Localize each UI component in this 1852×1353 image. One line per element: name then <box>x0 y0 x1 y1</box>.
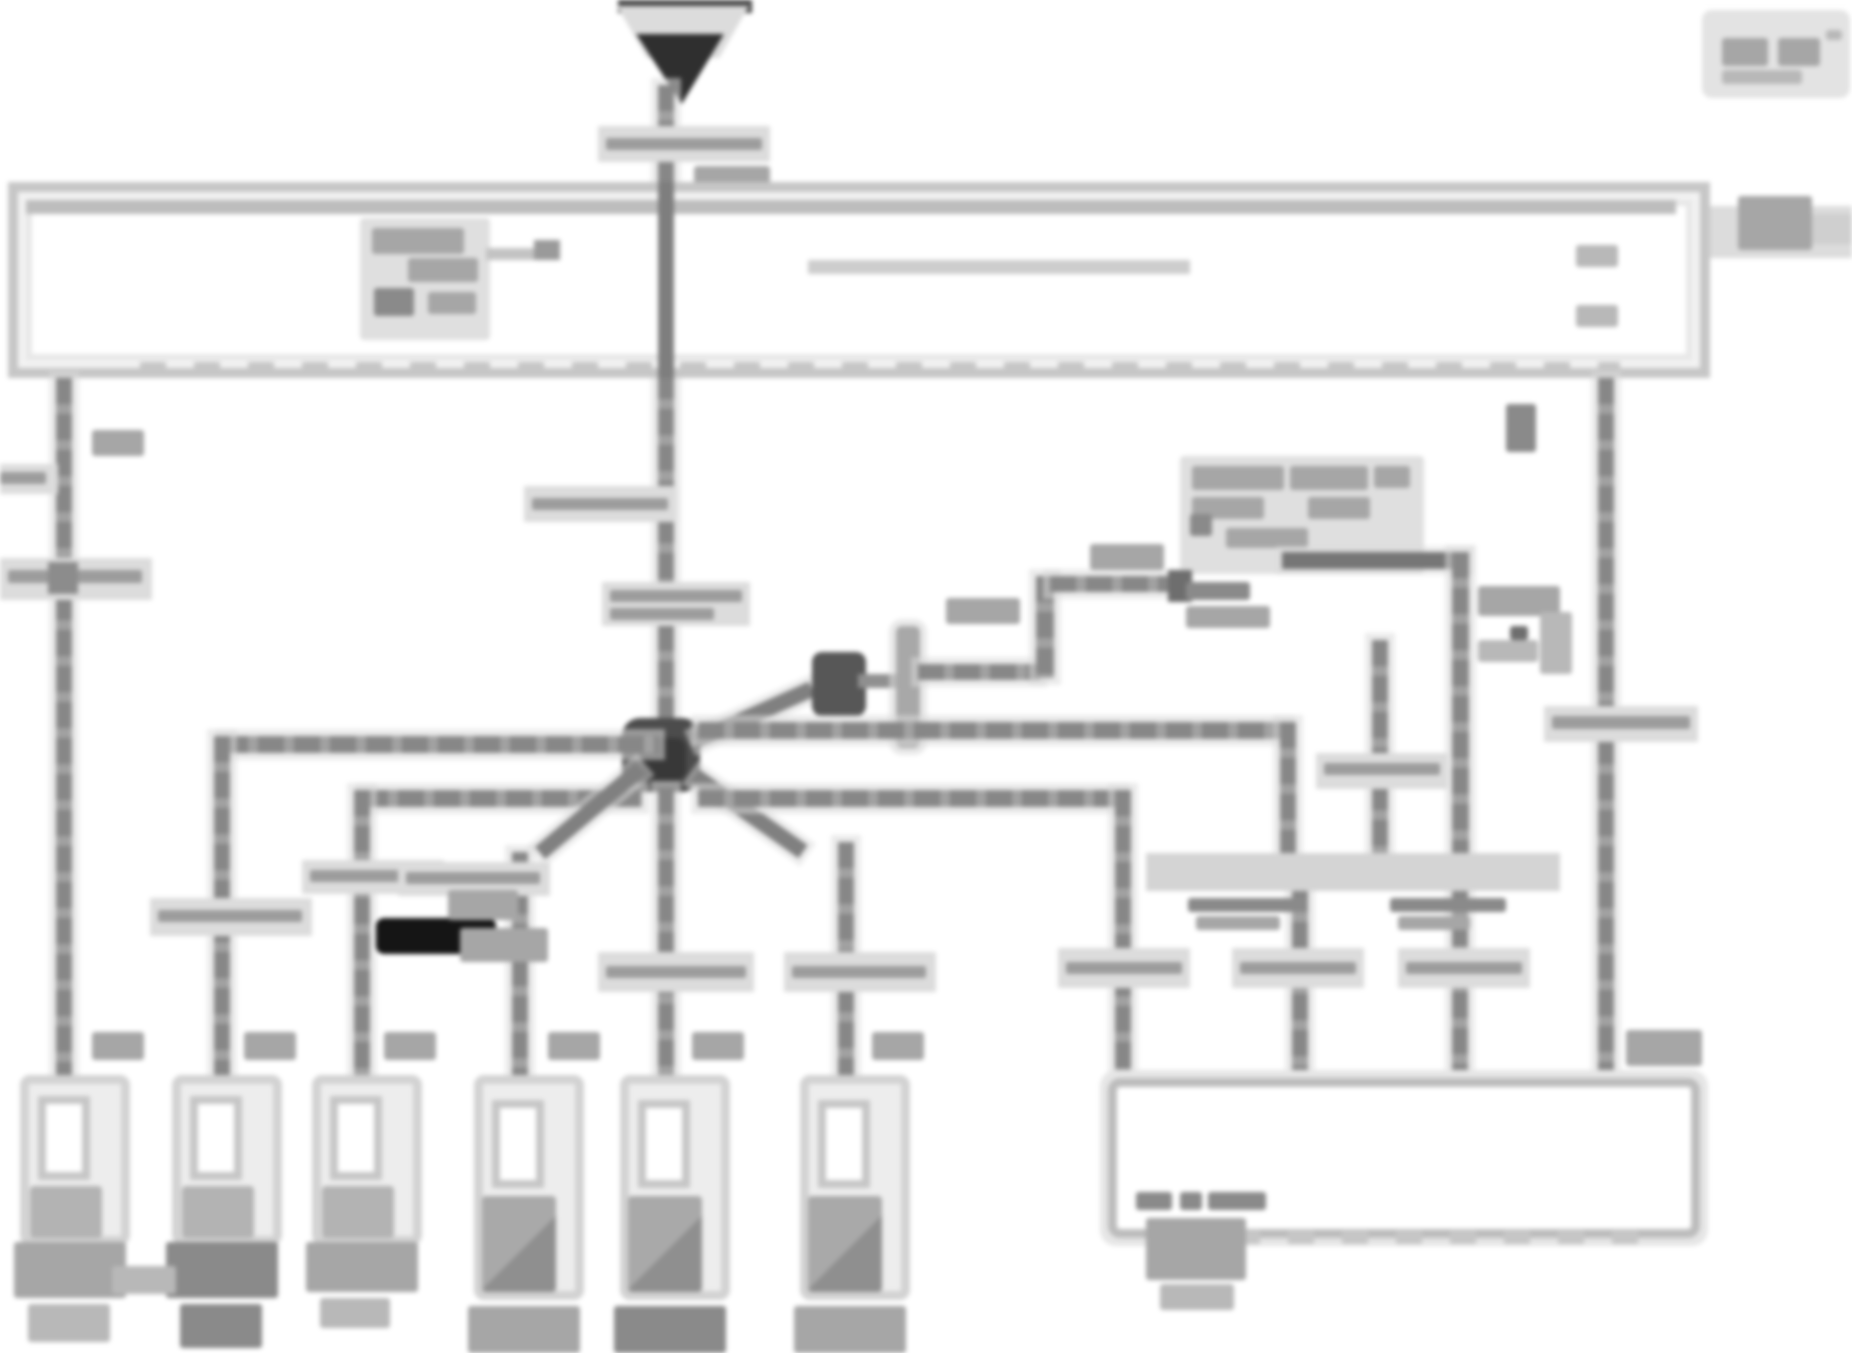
relay-label-blob <box>1226 528 1308 548</box>
relay-coil-drop <box>1372 640 1388 862</box>
wire-branch-lowerright-drop <box>1115 790 1131 1082</box>
tick-wire-label-bar <box>1066 962 1182 974</box>
connector-label-bridge <box>112 1266 176 1294</box>
box-top-band <box>26 200 1676 214</box>
relay-pin-label-blob <box>1478 640 1538 662</box>
connector-label-blob <box>14 1242 126 1298</box>
connector-fill <box>182 1186 254 1238</box>
ecm-dashed-bottom-edge <box>1180 1230 1660 1244</box>
tick-wire-label-bar <box>1240 962 1356 974</box>
connector-stub <box>858 674 900 688</box>
wire-branch-right-drop <box>1280 722 1296 862</box>
tick-wire-label-bar <box>532 498 668 510</box>
ecm-box <box>1108 1078 1700 1238</box>
wire-branch-downleft-diagonal <box>535 762 646 859</box>
tick-wire-label-bar <box>0 472 46 484</box>
tick-wire-label-bar <box>158 910 302 922</box>
wire-branch-left-lower-drop <box>354 790 370 1080</box>
connector-fill <box>30 1186 102 1238</box>
wire-color-label-blob <box>1090 544 1164 570</box>
wire-color-label-blob <box>692 1032 744 1060</box>
band-label-blob <box>1398 916 1470 930</box>
wiring-diagram-canvas <box>0 0 1852 1353</box>
wire-label-blob <box>448 890 518 920</box>
pin-label-blob <box>1576 245 1618 267</box>
stamp-text-blob <box>1722 38 1768 66</box>
tick-wire-label-bar <box>1552 716 1690 729</box>
box-label-blob <box>428 292 476 314</box>
ecm-label-blob <box>1180 1192 1202 1210</box>
label-leader-line <box>486 248 538 260</box>
wire-stub-blob <box>1506 404 1536 452</box>
wire-color-label-blob <box>946 598 1020 624</box>
connector-fill <box>628 1196 702 1292</box>
box-inner-line <box>808 260 1190 274</box>
tick-wire-label-bar <box>610 590 742 602</box>
box-label-blob <box>372 228 464 254</box>
connector-fill <box>482 1196 556 1292</box>
wire-branch-downright-diagonal <box>690 769 807 858</box>
band-label-blob <box>1390 898 1506 912</box>
tick-wire-label-bar <box>606 966 746 978</box>
tick-wire-label-bar <box>406 872 540 884</box>
connector-fill <box>322 1186 394 1238</box>
ecm-label-blob <box>1146 1218 1246 1280</box>
title-stamp <box>1702 10 1850 98</box>
relay-label-blob <box>1374 466 1410 488</box>
relay-label-blob <box>1308 497 1370 519</box>
box-right-exit-blob <box>1738 196 1812 250</box>
relay-sub-label-blob <box>1186 606 1270 628</box>
wire-color-label-blob <box>92 430 144 456</box>
wire-label-blob <box>1540 612 1572 674</box>
wire-color-label-blob <box>244 1032 296 1060</box>
tick-wire-label-bar <box>792 966 926 978</box>
band-label-blob <box>1196 916 1280 930</box>
connector-fill <box>808 1196 882 1292</box>
connector-window <box>638 1100 690 1188</box>
horizontal-wire-band <box>1146 853 1560 891</box>
connector-window <box>818 1100 870 1188</box>
wire-color-label-blob <box>92 1032 144 1060</box>
box-right-exit-tail <box>1812 214 1852 244</box>
relay-output-wire <box>1282 552 1468 569</box>
connector-label-blob <box>306 1242 418 1292</box>
label-leader-tick <box>534 240 560 260</box>
tick-wire-label-bar <box>606 138 762 150</box>
wire-branch-down <box>658 788 674 1083</box>
ecm-label-blob <box>1160 1284 1234 1310</box>
connector-label-blob <box>614 1306 726 1353</box>
band-label-blob <box>1188 898 1308 912</box>
tick-cross <box>48 562 78 594</box>
connector-window <box>38 1096 90 1180</box>
connector-window <box>330 1096 382 1180</box>
connector-label-blob <box>180 1304 262 1348</box>
connector-label-blob <box>166 1242 278 1298</box>
relay-output-drop <box>1452 552 1469 864</box>
relay-pin-dot <box>1510 626 1528 640</box>
wire-color-label-blob <box>384 1032 436 1060</box>
fuse-junction-box-inner <box>26 200 1692 360</box>
wire-to-relay <box>918 664 1040 680</box>
relay-label-blob <box>1192 466 1284 490</box>
ecm-label-blob <box>1208 1192 1266 1210</box>
wire-label-blob <box>460 928 548 962</box>
fuse-junction-box <box>8 182 1710 378</box>
relay-label-blob <box>1290 466 1368 490</box>
tick-wire-label-bar <box>610 608 714 620</box>
connector-window <box>492 1100 544 1188</box>
wire-branch-lowerright <box>698 790 1123 807</box>
connector-label-blob <box>794 1306 906 1353</box>
wire-branch-right <box>698 722 1288 739</box>
box-label-blob <box>408 258 478 282</box>
wire-color-label-blob <box>548 1032 600 1060</box>
pin-label-blob <box>1626 1030 1702 1066</box>
tick-wire-label-bar <box>1406 962 1522 974</box>
relay-label-blob <box>1190 514 1212 536</box>
pin-label-blob <box>1576 305 1618 327</box>
tick-wire-label-bar <box>1324 763 1440 775</box>
ecm-label-blob <box>1136 1192 1172 1210</box>
wire-branch-left-upper <box>222 736 658 753</box>
connector-label-blob <box>468 1306 580 1353</box>
relay-sub-label-blob <box>1186 582 1250 600</box>
wire-left-branch <box>56 378 72 1078</box>
connector-label-blob <box>28 1304 110 1342</box>
wire-color-label-blob <box>872 1032 924 1060</box>
connector-window <box>190 1096 242 1180</box>
connector-label-blob <box>320 1298 390 1328</box>
wire-to-relay-top <box>1050 576 1186 592</box>
wire-battery-feed-through-box <box>658 182 674 378</box>
stamp-text-blob <box>1826 30 1842 40</box>
stamp-text-blob <box>1778 38 1820 66</box>
box-dashed-bottom-edge <box>140 362 1620 376</box>
stamp-text-blob <box>1722 70 1802 84</box>
box-label-blob <box>374 288 414 316</box>
power-feed-arrow-icon <box>636 34 724 104</box>
